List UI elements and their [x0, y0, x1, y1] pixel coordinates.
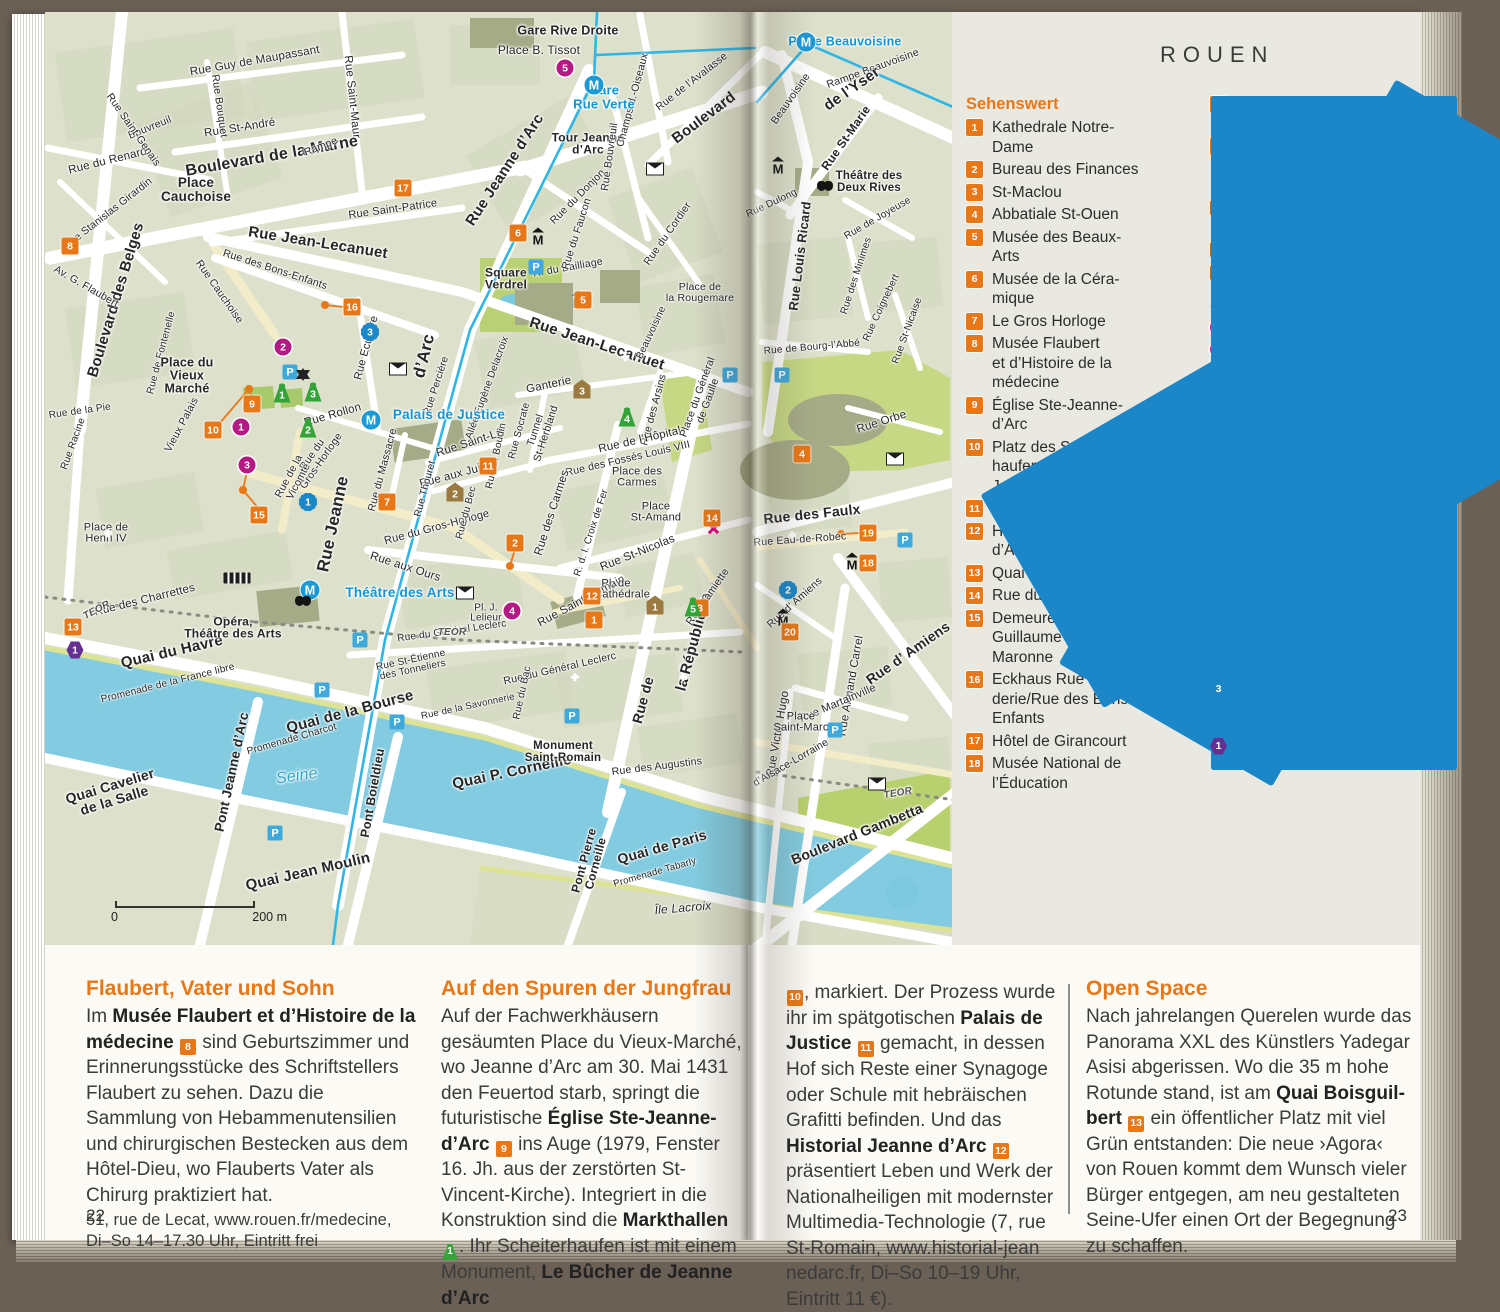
street-label: Promenade de la France libre: [100, 662, 236, 705]
map-marker-sq-10: 10: [787, 990, 803, 1006]
parking-icon: P: [723, 368, 738, 383]
museum-m: M: [847, 559, 858, 572]
map-marker-hx-1: 1: [67, 642, 84, 659]
parking-icon: P: [390, 715, 405, 730]
map-marker-sq-9: 9: [244, 396, 261, 413]
street-label: Rue Jeanne: [314, 475, 352, 574]
street-label: Rue du Renard: [67, 146, 148, 177]
street-label: Rue des Minimes: [840, 236, 875, 316]
map-marker-sq-14: 14: [966, 587, 983, 604]
article-note: 51, rue de Lecat, www.rouen.fr/medecine,…: [86, 1210, 418, 1252]
post-office-icon: [886, 453, 904, 466]
map-marker-sq-11: 11: [480, 458, 497, 475]
street-label: Place de Henri IV: [84, 523, 128, 546]
legend-item: 5Musée des Beaux- Arts: [966, 228, 1198, 267]
street-label: Place du Vieux Marché: [160, 357, 213, 396]
map-marker-gr-3: 3: [362, 324, 379, 341]
envelope-flap: [648, 164, 662, 169]
map-marker-sq-5: 5: [575, 292, 592, 309]
parking-icon: P: [529, 260, 544, 275]
metro-station-icon: M: [796, 32, 817, 53]
map-marker-sq-4: 4: [794, 446, 811, 463]
map-marker-gr-1: 1: [300, 494, 317, 511]
map-marker-gr-2: 2: [780, 582, 797, 599]
street-label: Vieux Palais: [163, 396, 201, 454]
map-marker-sq-10: 10: [966, 439, 983, 456]
triangle: [296, 370, 310, 381]
map-marker-sq-18: 18: [966, 755, 983, 772]
post-office-icon: [456, 587, 474, 600]
street-label: Rue Saint-Maur: [341, 55, 362, 139]
street-label: Rue des Bons-Enfants: [221, 248, 328, 292]
map-marker-sq-8: 8: [180, 1039, 196, 1055]
legend-item: 8Musée Flaubert et d’Histoire de la méde…: [966, 334, 1198, 393]
metro-station-label: Théâtre des Arts: [345, 586, 454, 600]
map-marker-sq-20: 20: [782, 624, 799, 641]
bold-reference: Église Ste-Jeanne-d’Arc: [441, 1108, 717, 1155]
street-label: Rue Saint-Patrice: [348, 198, 438, 222]
street-label: Gare Rive Droite: [517, 25, 618, 38]
street-label: Rue aux Ours: [368, 551, 441, 585]
street-label: Ganterie: [525, 375, 572, 396]
map-scale-bar: 0 200 m: [115, 906, 287, 924]
map-marker-sq-10: 10: [205, 422, 222, 439]
street-label: Rue Eau-de-Robec: [753, 531, 847, 548]
map-marker-sq-16: 16: [344, 299, 361, 316]
legend-item-label: Musée National de l’Éducation: [992, 754, 1121, 793]
legend-item-label: Le Gros Horloge: [992, 312, 1106, 332]
parking-icon: P: [565, 709, 580, 724]
article-heading: Flaubert, Vater und Sohn: [86, 976, 418, 1002]
map-marker-ci-1: 1: [233, 419, 250, 436]
map-marker-sq-16: 16: [966, 671, 983, 688]
map-marker-sq-6: 6: [966, 271, 983, 288]
envelope-flap: [458, 588, 472, 593]
theater-masks-icon: [295, 596, 309, 606]
map-marker-ci-5: 5: [557, 60, 574, 77]
map-marker-sq-8: 8: [62, 238, 79, 255]
article-body: Auf der Fachwerkhäusern gesäumten Place …: [441, 1004, 743, 1311]
article-flaubert: Flaubert, Vater und SohnIm Musée Flauber…: [86, 976, 418, 1252]
legend-item: 2Bureau des Finances: [966, 160, 1198, 180]
street-label: Pont Boieldieu: [359, 747, 387, 838]
map-marker-sq-12: 12: [584, 588, 601, 605]
map-marker-sq-4: 4: [966, 206, 983, 223]
map-marker-gr-3: 3: [1210, 680, 1227, 697]
metro-station-label: Palais de Justice: [393, 408, 505, 422]
map-marker-ci-2: 2: [275, 339, 292, 356]
parking-icon: P: [898, 533, 913, 548]
map-marker-sq-3: 3: [966, 184, 983, 201]
map-marker-sq-5: 5: [966, 229, 983, 246]
legend-item-label: St-Maclou: [992, 183, 1062, 203]
museum-icon: M: [846, 553, 858, 572]
street-label: Place des Carmes: [612, 467, 662, 490]
map-marker-sq-19: 19: [860, 525, 877, 542]
map-marker-bgk-4: 4: [619, 408, 636, 427]
street-label: Rue du Gros-Horloge: [383, 508, 491, 547]
marker-number: 2: [785, 584, 791, 596]
map-overlay: 0 200 m Rue Guy de MaupassantRue St-Andr…: [45, 12, 952, 945]
article-open-space: Open SpaceNach jahrelangen Querelen wurd…: [1086, 976, 1416, 1259]
map-marker-sq-2: 2: [507, 535, 524, 552]
map-marker-hs-2: 2: [447, 483, 464, 502]
post-office-icon: [389, 363, 407, 376]
map-marker-bgk-1: 1: [274, 384, 291, 403]
map-marker-bgk-3: 3: [305, 383, 322, 402]
legend-item: 3St-Maclou: [966, 183, 1198, 203]
bold-reference: Palais de Justice: [786, 1008, 1043, 1055]
mask: [824, 181, 833, 191]
museum-m: M: [773, 163, 784, 176]
street-label: Rue des Charrettes: [93, 583, 196, 620]
legend-item: 3The Nash Café: [1210, 679, 1458, 699]
street-label: Rue Thouret: [414, 460, 439, 518]
street-label: Rue d’ Amiens: [863, 619, 952, 687]
article-heading: Open Space: [1086, 976, 1416, 1002]
legend-item-label: Musée des Beaux- Arts: [992, 228, 1121, 267]
bold-reference: Le Bûcher de Jeanne d’Arc: [441, 1262, 732, 1309]
museum-icon: M: [532, 228, 544, 247]
map-marker-sq-17: 17: [966, 733, 983, 750]
page-edge-left: [12, 14, 45, 1240]
legend-section: Wenn die Nacht beginnt1Le Vicomté2La Por…: [1210, 611, 1458, 699]
river-label: Seine: [275, 766, 319, 788]
street-label: Rue des Carmes: [534, 469, 573, 557]
street-label: Rue Cauchoise: [193, 258, 245, 325]
page-title: ROUEN: [1160, 42, 1274, 68]
street-label: Opéra, Théâtre des Arts: [184, 616, 281, 641]
street-label: Quai Jean Moulin: [244, 850, 372, 894]
map-marker-sq-6: 6: [510, 225, 527, 242]
post-office-icon: [646, 163, 664, 176]
street-label: Rue Orbe: [856, 409, 909, 436]
street-label: Place Cauchoise: [161, 176, 231, 204]
street-label: Monument Saint-Romain: [525, 741, 602, 765]
legend-item-label: Musée Flaubert et d’Histoire de la médec…: [992, 334, 1112, 393]
street-label: Rue St-Étienne des Tonneliers: [375, 648, 448, 683]
article-body: 10, markiert. Der Prozess wurde ihr im s…: [786, 980, 1062, 1312]
street-label: Rue St-Nicolas: [599, 534, 677, 575]
street-label: d’Alsace-Lorraine: [751, 737, 830, 789]
map-marker-sq-1: 1: [586, 612, 603, 629]
legend-item-label: Hôtel de Girancourt: [992, 732, 1126, 752]
metro-station-icon: M: [584, 75, 605, 96]
envelope-flap: [870, 779, 884, 784]
street-label: Boulevard Gambetta: [789, 801, 925, 867]
street-label: Rue de: [630, 675, 656, 725]
street-label: Théâtre des Deux Rives: [836, 171, 903, 195]
map-marker-sq-1: 1: [966, 119, 983, 136]
museum-m: M: [533, 234, 544, 247]
page-number-right: 23: [1388, 1206, 1407, 1226]
page-number-left: 22: [86, 1206, 105, 1226]
map-marker-sq-18: 18: [860, 555, 877, 572]
map-marker-sq-9: 9: [496, 1141, 512, 1157]
street-label: Rue Jeanne d’Arc: [463, 111, 547, 228]
scale-line: [115, 906, 255, 908]
parking-icon: P: [315, 683, 330, 698]
map-marker-sq-7: 7: [966, 313, 983, 330]
teor-label: TEOR: [883, 786, 913, 801]
parking-icon: P: [268, 826, 283, 841]
legend-item: 6Musée de la Céra- mique: [966, 270, 1198, 309]
street-label: Pont Jeanne d’Arc: [212, 711, 251, 833]
street-label: Rue Guy de Maupassant: [189, 45, 321, 80]
mask: [302, 596, 311, 606]
legend-item-label: Musée de la Céra- mique: [992, 270, 1120, 309]
street-label: Rue Louis Ricard: [787, 201, 814, 312]
street-label: Pont Pierre Corneille: [569, 827, 610, 897]
map-marker-bgk-1: 1: [442, 1244, 458, 1260]
article-heading: Auf den Spuren der Jungfrau: [441, 976, 743, 1002]
street-label: Rue St-Nicaise: [891, 297, 925, 366]
legend-item: 7Le Gros Horloge: [966, 312, 1198, 332]
museum-icon: M: [772, 157, 784, 176]
map-marker-sq-13: 13: [1128, 1116, 1144, 1132]
street-label: Place du Général de Gaulle: [678, 356, 727, 443]
street-label: Beauvoisine: [769, 72, 812, 127]
street-label: Rue de la Savonnerie: [420, 692, 515, 721]
article-prozess: 10, markiert. Der Prozess wurde ihr im s…: [786, 980, 1062, 1312]
street-label: Rue de Joyeuse: [843, 196, 913, 243]
legend-item: 4Abbatiale St-Ouen: [966, 205, 1198, 225]
tram-icon: [224, 573, 251, 584]
legend-item: 18Musée National de l’Éducation: [966, 754, 1198, 793]
column-divider: [1068, 984, 1070, 1214]
map-marker-sq-14: 14: [704, 510, 721, 527]
metro-station-icon: M: [361, 410, 382, 431]
map-marker-ci-3: 3: [239, 457, 256, 474]
post-office-icon: [868, 778, 886, 791]
scale-start: 0: [111, 910, 118, 924]
street-label: Place St-Amand: [631, 502, 682, 525]
marker-number: 3: [367, 326, 373, 338]
map-marker-sq-9: 9: [966, 397, 983, 414]
street-label: Rue St-André: [203, 117, 276, 140]
marker-number: 3: [1216, 683, 1222, 695]
legend-section-heading: Sehenswert: [966, 95, 1198, 114]
map-marker-sq-13: 13: [966, 565, 983, 582]
map-marker-sq-12: 12: [966, 523, 983, 540]
street-label: Rue de Bourg-l’Abbé: [763, 339, 860, 358]
street-label: Rue Jean-Lecanuet: [247, 224, 389, 261]
bold-reference: Musée Flaubert et d’Histoire de la médec…: [86, 1006, 415, 1053]
street-label: Quai Cavelier de la Salle: [64, 766, 161, 821]
teor-label: TEOR: [438, 628, 467, 638]
map-marker-sq-12: 12: [993, 1143, 1009, 1159]
legend-item-label: Abbatiale St-Ouen: [992, 205, 1119, 225]
map-marker-ci-4: 4: [504, 603, 521, 620]
map-marker-sq-7: 7: [379, 494, 396, 511]
map-marker-hs-3: 3: [574, 380, 591, 399]
map-marker-sq-15: 15: [966, 610, 983, 627]
bold-reference: Markthallen: [623, 1210, 729, 1231]
street-label: Rue Racine: [60, 417, 88, 472]
map-marker-sq-2: 2: [966, 161, 983, 178]
parking-icon: P: [775, 368, 790, 383]
article-body: Im Musée Flaubert et d’Histoire de la mé…: [86, 1004, 418, 1208]
article-jungfrau: Auf den Spuren der JungfrauAuf der Fachw…: [441, 976, 743, 1311]
map-marker-sq-13: 13: [65, 619, 82, 636]
bold-reference: Historial Jeanne d’Arc: [786, 1136, 992, 1157]
street-label: Square Verdrel: [485, 267, 527, 292]
article-body: Nach jahrelangen Querelen wurde das Pano…: [1086, 1004, 1416, 1259]
street-label: Île Lacroix: [654, 899, 712, 916]
street-label: Rue des Faulx: [763, 502, 862, 527]
street-label: Rue Dulong: [745, 188, 799, 221]
street-label: Rue St-Marie: [819, 103, 873, 172]
legend-item-label: Bureau des Finances: [992, 160, 1138, 180]
scale-end: 200 m: [252, 910, 287, 924]
legend-item-label: Kathedrale Notre- Dame: [992, 118, 1114, 157]
map-marker-sq-11: 11: [966, 500, 983, 517]
marker-number: 1: [305, 496, 311, 508]
parking-icon: P: [828, 723, 843, 738]
envelope-flap: [888, 454, 902, 459]
legend-column-b: 19Passage de la Petite Horloge20Aître St…: [1210, 95, 1458, 771]
legend-item: 1Kathedrale Notre- Dame: [966, 118, 1198, 157]
street-label: Rue Coignebert: [862, 273, 902, 343]
map-marker-sq-17: 17: [395, 180, 412, 197]
street-label: Rue des Augustins: [611, 756, 703, 778]
theater-masks-icon: [817, 181, 831, 191]
envelope-flap: [391, 364, 405, 369]
street-label: Place B. Tissot: [498, 44, 580, 56]
parking-icon: P: [353, 633, 368, 648]
street-label: Place de la Rougemare: [666, 282, 734, 304]
street-label: Place Saint-Marc: [773, 712, 828, 735]
street-label: Rue du Cordier: [642, 201, 693, 268]
legend-item: 17Hôtel de Girancourt: [966, 732, 1198, 752]
map-marker-sq-15: 15: [251, 507, 268, 524]
map-marker-sq-11: 11: [858, 1041, 874, 1057]
map-marker-sq-8: 8: [966, 335, 983, 352]
